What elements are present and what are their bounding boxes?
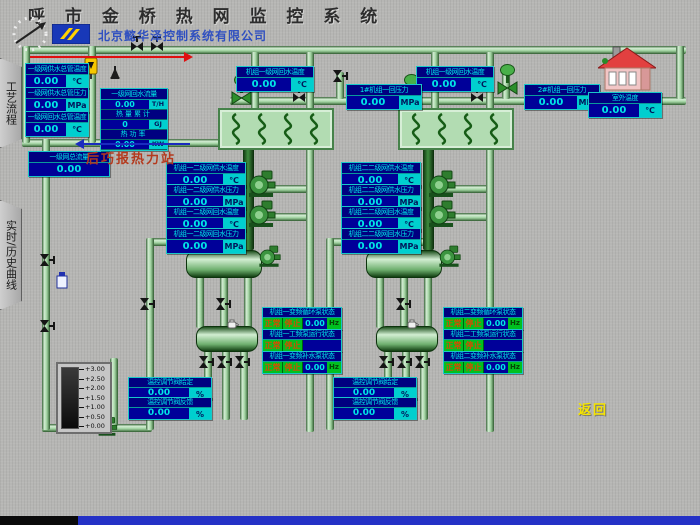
measure-box-unit: MPa	[223, 240, 245, 253]
status-box-unit2-vfd-circ-pump-status: 机组二变频循环泵状态正常停止0.00Hz	[443, 307, 523, 330]
pump-icon[interactable]	[246, 200, 276, 232]
status-box-title: 机组一工频泵运行状态	[263, 330, 341, 340]
status-cell: 停止	[283, 362, 303, 373]
tank-scale-label: +1.00	[85, 404, 105, 411]
valve-icon	[212, 355, 232, 369]
scada-screen: 呼 市 金 桥 热 网 监 控 系 统 北京懿华泽控制系统有限公司 工艺流程 实…	[0, 0, 700, 525]
control-valve-icon[interactable]	[496, 64, 519, 100]
measure-box-value: 0.00	[334, 408, 394, 419]
measure-box-unit2-valve-feedback: 温控调节阀反馈0.00%	[333, 397, 417, 420]
measure-box-row: 0.00%	[129, 408, 211, 419]
status-cell: 正常	[263, 340, 283, 351]
measure-box-row: 0.00℃	[417, 78, 493, 91]
status-cell: 正常	[263, 318, 283, 329]
valve-icon	[391, 297, 411, 311]
pump-icon[interactable]	[437, 245, 461, 271]
measure-box-row: 0.00MPa	[342, 240, 420, 253]
status-box-row: 正常停止	[263, 340, 341, 351]
tank-scale-tickmark	[79, 369, 84, 370]
status-cell: 正常	[444, 318, 464, 329]
valve-icon	[374, 355, 394, 369]
flow-box-value: 0.00	[101, 100, 149, 109]
measure-box-title: 一级网供水总管压力	[26, 88, 88, 99]
pipe-segment	[25, 46, 686, 54]
measure-box-title: 一级网供水总管温度	[26, 64, 88, 75]
status-cell: 停止	[283, 318, 303, 329]
measure-box-unit: MPa	[399, 96, 421, 109]
status-cell: 正常	[444, 340, 464, 351]
status-box-unit2-vfd-makeup-pump-status: 机组二变频补水泵状态正常停止0.00Hz	[443, 351, 523, 374]
measure-box-unit2-secondary-return-press: 机组二二级网回水压力0.00MPa	[341, 228, 421, 254]
bottom-bar-blue	[78, 516, 700, 525]
tank-scale-label: +1.50	[85, 395, 105, 402]
flask-instrument-icon	[110, 64, 120, 83]
measure-box-title: 机组一级网回水温度	[237, 67, 313, 78]
heat-exchanger-bank	[398, 108, 514, 150]
company-name: 北京懿华泽控制系统有限公司	[98, 27, 267, 44]
measure-box-title: 机组一二级网回水压力	[167, 229, 245, 240]
heat-exchanger-bank	[218, 108, 334, 150]
status-box-unit1-vfd-makeup-pump-status: 机组一变频补水泵状态正常停止0.00Hz	[262, 351, 342, 374]
measure-box-unit1-primary-return-temp: 机组一级网回水温度0.00℃	[236, 66, 314, 92]
measure-box-value: 0.00	[26, 123, 66, 136]
measure-box-title: 温控调节阀给定	[129, 378, 211, 388]
tank-scale-tick: +2.00	[79, 385, 109, 392]
tank-scale-label: +0.50	[85, 414, 105, 421]
status-cell: 0.00	[303, 318, 327, 329]
measure-box-value: 0.00	[347, 96, 399, 109]
measure-box-title: 温控调节阀反馈	[129, 398, 211, 408]
measure-box-row: 0.00℃	[237, 78, 313, 91]
tank-scale-label: +2.50	[85, 376, 105, 383]
tank-scale-label: +0.00	[85, 423, 105, 430]
valve-icon	[35, 253, 55, 267]
measure-box-title: 机组二二级网回水温度	[342, 207, 420, 218]
measure-box-row: 0.00℃	[589, 104, 661, 117]
status-cell: 0.00	[484, 362, 508, 373]
return-flow-arrow	[84, 143, 190, 145]
tab-process-flow-label: 工艺流程	[3, 81, 19, 125]
pump-icon[interactable]	[426, 200, 456, 232]
measure-box-value: 0.00	[167, 240, 223, 253]
measure-box-title: 机组二二级网回水压力	[342, 229, 420, 240]
pipe-segment	[42, 139, 50, 430]
tank-scale-tick: +0.00	[79, 423, 109, 430]
back-button[interactable]: 返回	[572, 398, 614, 419]
tank-scale: +3.00+2.50+2.00+1.50+1.00+0.50+0.00	[79, 366, 109, 430]
status-box-row: 正常停止0.00Hz	[263, 318, 341, 329]
valve-icon	[392, 355, 412, 369]
valve-icon	[211, 297, 231, 311]
flow-box-unit: GJ	[149, 120, 167, 129]
measure-box-title: 1#机组一回压力	[347, 85, 421, 96]
valve-icon	[194, 355, 214, 369]
measure-box-row: 0.00MPa	[347, 96, 421, 109]
measure-box-primary-return-main-temp: 一级网回水总管温度0.00℃	[25, 111, 89, 137]
valve-icon	[35, 319, 55, 333]
flow-box-row: 热量累计	[101, 110, 167, 120]
flow-box-row: 0GJ	[101, 120, 167, 130]
tank-scale-tickmark	[79, 417, 84, 418]
status-box-row: 正常停止0.00Hz	[444, 362, 522, 373]
tab-realtime-history-curves[interactable]: 实时/历史曲线	[0, 200, 22, 310]
measure-box-title: 机组一二级网供水压力	[167, 185, 245, 196]
flow-box-value: 0	[101, 120, 149, 129]
valve-icon	[135, 297, 155, 311]
measure-box-unit: ℃	[291, 78, 313, 91]
status-box-row: 正常停止	[444, 340, 522, 351]
measure-box-value: 0.00	[129, 408, 189, 419]
flow-box-row: 0.00T/H	[101, 100, 167, 110]
measure-box-title: 机组一级网回水温度	[417, 67, 493, 78]
measure-box-unit: ℃	[471, 78, 493, 91]
measure-box-unit1-secondary-return-press: 机组一二级网回水压力0.00MPa	[166, 228, 246, 254]
measure-box-title: 温控调节阀反馈	[334, 398, 416, 408]
measure-box-unit2-primary-return-temp: 机组一级网回水温度0.00℃	[416, 66, 494, 92]
measure-box-title: 室外温度	[589, 93, 661, 104]
flow-box-unit: T/H	[149, 100, 167, 109]
primary-return-flow-box: 一级网回水流量 0.00T/H热量累计0GJ热功率0.00KW	[100, 88, 168, 151]
measure-box-title: 温控调节阀给定	[334, 378, 416, 388]
pipe-segment	[676, 46, 684, 99]
house-outdoor-icon	[598, 44, 656, 96]
pump-icon[interactable]	[246, 170, 276, 202]
status-cell: 停止	[464, 340, 484, 351]
tank-scale-tick: +0.50	[79, 414, 109, 421]
measure-box-unit1-primary-return-press: 1#机组一回压力0.00MPa	[346, 84, 422, 110]
measure-box-primary-supply-main-temp: 一级网供水总管温度0.00℃	[25, 63, 89, 89]
status-cell: 0.00	[303, 362, 327, 373]
measure-box-title: 机组一二级网回水温度	[167, 207, 245, 218]
tank-scale-tickmark	[79, 426, 84, 427]
measure-box-row: 0.00℃	[26, 123, 88, 136]
tab-realtime-history-curves-label: 实时/历史曲线	[3, 220, 19, 290]
pipe-segment	[376, 274, 384, 328]
tank-scale-label: +3.00	[85, 366, 105, 373]
water-tank-level-gauge: +3.00+2.50+2.00+1.50+1.00+0.50+0.00	[56, 362, 112, 434]
measure-box-value: 0.00	[237, 78, 291, 91]
pipe-segment	[196, 274, 204, 328]
manifold-vessel	[186, 250, 262, 278]
measure-box-value: 0.00	[589, 104, 639, 117]
status-box-title: 机组二变频补水泵状态	[444, 352, 522, 362]
tank-scale-tickmark	[79, 398, 84, 399]
status-box-title: 机组二变频循环泵状态	[444, 308, 522, 318]
measure-box-row: 0.00%	[334, 408, 416, 419]
measure-box-unit: ℃	[66, 123, 88, 136]
valve-icon	[328, 69, 348, 83]
measure-box-title: 机组二二级网供水温度	[342, 163, 420, 174]
measure-box-unit: MPa	[398, 240, 420, 253]
measure-box-unit1-valve-feedback: 温控调节阀反馈0.00%	[128, 397, 212, 420]
pump-icon[interactable]	[426, 170, 456, 202]
flow-box-label: 热功率	[101, 130, 167, 139]
status-cell: Hz	[327, 318, 341, 329]
status-cell-filler	[303, 340, 341, 351]
status-cell-filler	[484, 340, 522, 351]
pressure-instrument-icon	[56, 272, 68, 293]
measure-box-primary-supply-main-press: 一级网供水总管压力0.00MPa	[25, 87, 89, 113]
measure-box-title: 一级网回水总管温度	[26, 112, 88, 123]
status-box-title: 机组一变频循环泵状态	[263, 308, 341, 318]
measure-box-row: 0.00MPa	[167, 240, 245, 253]
tank-scale-tick: +2.50	[79, 376, 109, 383]
tank-scale-tick: +3.00	[79, 366, 109, 373]
measure-box-unit: ℃	[639, 104, 661, 117]
flow-box-row: 热功率	[101, 130, 167, 140]
tank-scale-label: +2.00	[85, 385, 105, 392]
valve-icon	[230, 355, 250, 369]
status-box-row: 正常停止0.00Hz	[263, 362, 341, 373]
status-box-title: 机组一变频补水泵状态	[263, 352, 341, 362]
measure-box-unit: %	[189, 408, 211, 419]
status-cell: 停止	[464, 318, 484, 329]
status-cell: 0.00	[484, 318, 508, 329]
tank-level-glass	[61, 367, 79, 429]
station-name-label: 后巧报热力站	[86, 148, 176, 167]
flow-box-label: 热量累计	[101, 110, 167, 119]
status-cell: 停止	[283, 340, 303, 351]
measure-box-value: 0.00	[525, 96, 577, 109]
measure-box-title: 机组二二级网供水压力	[342, 185, 420, 196]
bottom-bar-black	[0, 516, 78, 525]
kettle-instrument-icon	[406, 314, 419, 333]
tab-process-flow[interactable]: 工艺流程	[0, 58, 22, 148]
tank-scale-tickmark	[79, 388, 84, 389]
clock-dashed-circle-arrow-icon	[8, 12, 52, 60]
pump-icon[interactable]	[257, 245, 281, 271]
tank-scale-tickmark	[79, 379, 84, 380]
pipe-segment	[244, 274, 252, 328]
tank-scale-tick: +1.50	[79, 395, 109, 402]
measure-box-value: 0.00	[342, 240, 398, 253]
status-box-unit1-vfd-circ-pump-status: 机组一变频循环泵状态正常停止0.00Hz	[262, 307, 342, 330]
measure-box-value: 0.00	[417, 78, 471, 91]
status-cell: 正常	[444, 362, 464, 373]
status-cell: Hz	[327, 362, 341, 373]
measure-box-title: 机组一二级网供水温度	[167, 163, 245, 174]
supply-flow-arrowhead	[184, 52, 193, 62]
tank-scale-tickmark	[79, 407, 84, 408]
company-logo	[52, 24, 90, 48]
status-cell: 停止	[464, 362, 484, 373]
status-box-title: 机组二工频泵运行状态	[444, 330, 522, 340]
status-box-unit2-fixed-pump-status: 机组二工频泵运行状态正常停止	[443, 329, 523, 352]
status-box-row: 正常停止0.00Hz	[444, 318, 522, 329]
supply-flow-arrow	[30, 56, 184, 58]
valve-icon	[410, 355, 430, 369]
status-cell: Hz	[508, 318, 522, 329]
status-cell: 正常	[263, 362, 283, 373]
measure-box-unit: %	[394, 408, 416, 419]
kettle-instrument-icon	[226, 314, 239, 333]
tank-scale-tick: +1.00	[79, 404, 109, 411]
status-box-unit1-fixed-pump-status: 机组一工频泵运行状态正常停止	[262, 329, 342, 352]
return-flow-arrowhead	[75, 139, 84, 149]
pipe-segment	[424, 274, 432, 328]
status-cell: Hz	[508, 362, 522, 373]
manifold-vessel	[366, 250, 442, 278]
flow-box-title: 一级网回水流量	[101, 89, 167, 100]
measure-box-outdoor-temp: 室外温度0.00℃	[588, 92, 662, 118]
